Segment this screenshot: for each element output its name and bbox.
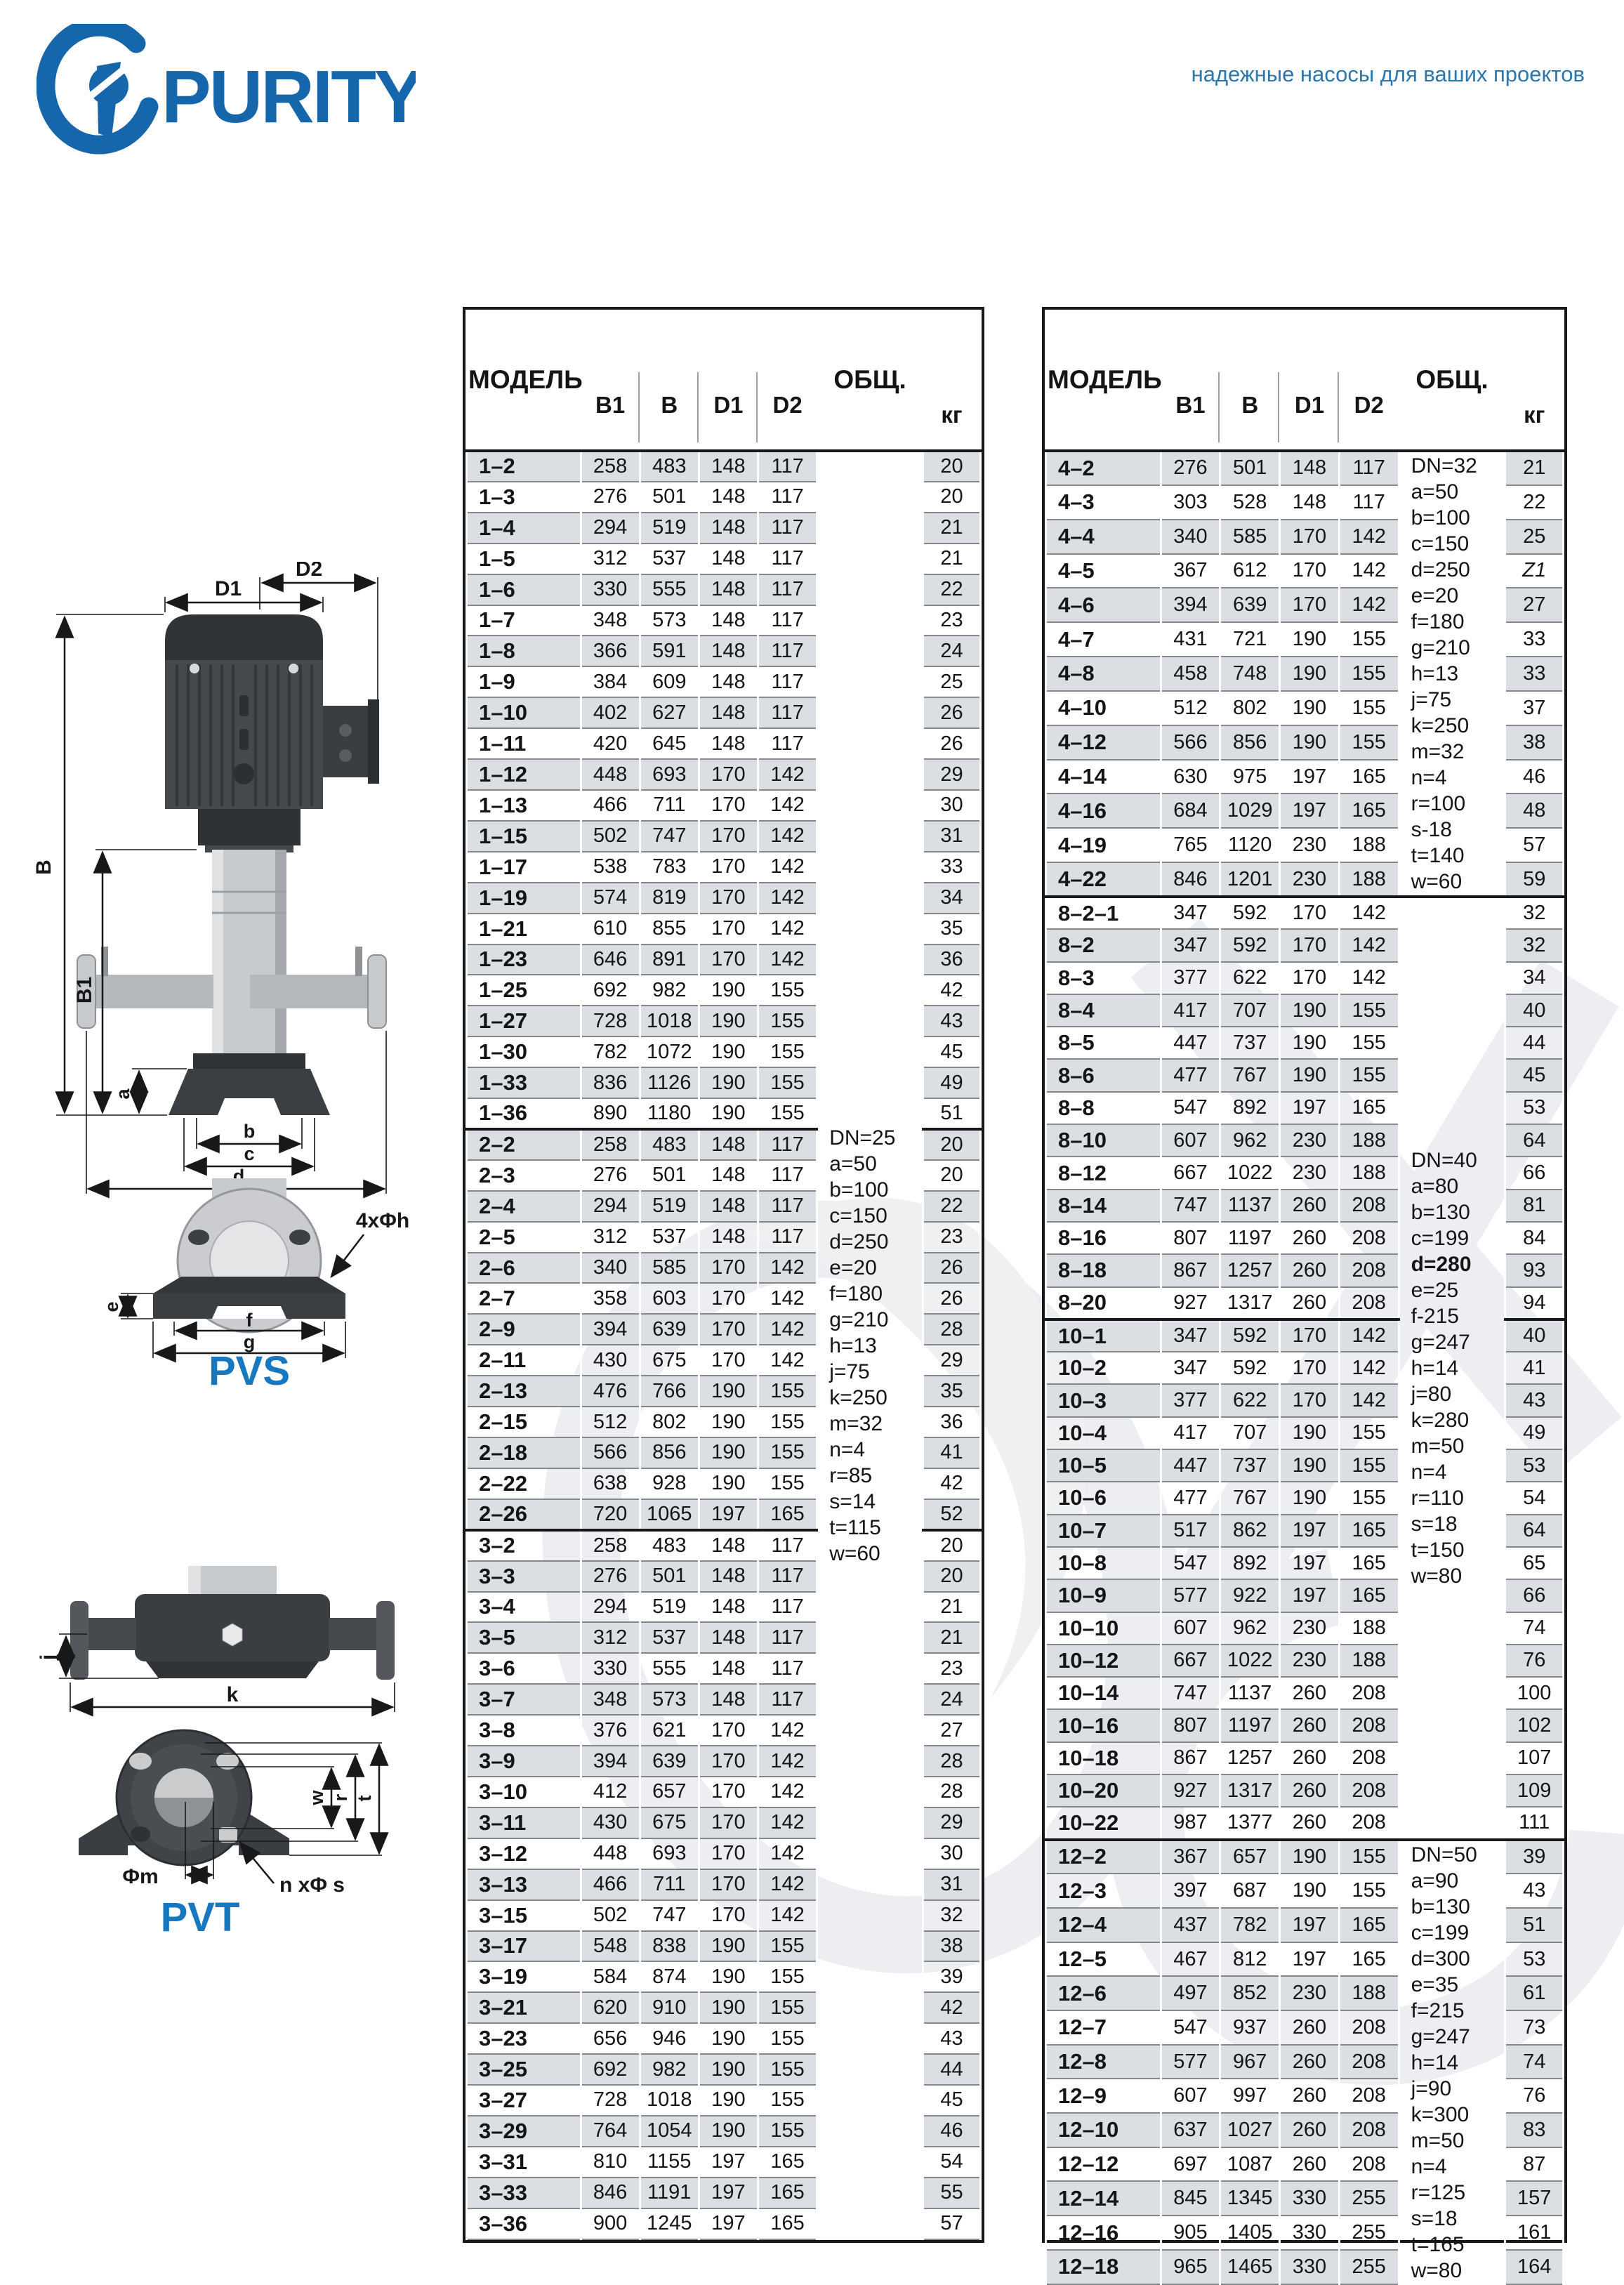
dim-cell: 707 — [1220, 1417, 1280, 1449]
dim-cell: 711 — [640, 1869, 699, 1900]
dim-cell: 782 — [1220, 1908, 1280, 1942]
dim-cell: 376 — [581, 1715, 640, 1746]
model-cell: 10–14 — [1046, 1677, 1161, 1709]
dim-cell: 155 — [1339, 1027, 1399, 1059]
dim-cell: 856 — [640, 1437, 699, 1468]
dim-cell: 807 — [1161, 1709, 1220, 1741]
dim-cell: 675 — [640, 1807, 699, 1838]
dim-cell: 148 — [1280, 485, 1340, 520]
pvt-flange-view: w r t Φm n xΦ s — [79, 1730, 382, 1897]
model-cell: 4–10 — [1046, 691, 1161, 725]
model-cell: 4–16 — [1046, 794, 1161, 828]
dim-cell: 846 — [1161, 862, 1220, 897]
dim-cell: 148 — [1280, 451, 1340, 485]
dim-cell: 867 — [1161, 1742, 1220, 1774]
dim-cell: 692 — [581, 975, 640, 1006]
dim-cell: 117 — [758, 1561, 817, 1592]
model-cell: 8–18 — [1046, 1254, 1161, 1286]
model-cell: 3–6 — [467, 1653, 581, 1684]
dim-cell: 255 — [1339, 2181, 1399, 2215]
discharge-pipe — [250, 975, 374, 1008]
weight-cell: 43 — [923, 2023, 980, 2054]
model-cell: 2–26 — [467, 1499, 581, 1530]
model-cell: 12–14 — [1046, 2181, 1161, 2215]
weight-cell: 46 — [923, 2116, 980, 2147]
dim-cell: 208 — [1339, 2010, 1399, 2045]
dim-cell: 645 — [640, 728, 699, 759]
dim-cell: 927 — [1161, 1774, 1220, 1807]
col-header-d2: D2 — [1339, 310, 1399, 451]
dim-cell: 155 — [758, 2023, 817, 2054]
weight-cell: 53 — [1505, 1092, 1564, 1124]
dim-cell: 747 — [640, 821, 699, 852]
obsh-notes-cell: DN=32a=50b=100c=150d=250e=20f=180g=210h=… — [1399, 451, 1505, 897]
dim-cell: 573 — [640, 605, 699, 636]
dim-cell: 190 — [1280, 657, 1340, 691]
dim-cell: 891 — [640, 944, 699, 975]
weight-cell: 52 — [923, 1499, 980, 1530]
model-cell: 2–7 — [467, 1283, 581, 1314]
model-cell: 3–27 — [467, 2085, 581, 2116]
dim-cell: 547 — [1161, 2010, 1220, 2045]
model-cell: 12–12 — [1046, 2147, 1161, 2182]
weight-cell: 20 — [923, 1561, 980, 1592]
weight-cell: 84 — [1505, 1222, 1564, 1254]
dim-cell: 148 — [699, 482, 758, 513]
dim-cell: 197 — [1280, 1908, 1340, 1942]
dim-cell: 165 — [1339, 1092, 1399, 1124]
dim-cell: 142 — [758, 944, 817, 975]
dim-cell: 547 — [1161, 1547, 1220, 1579]
dim-cell: 1377 — [1220, 1807, 1280, 1839]
dim-label-a: a — [112, 1088, 133, 1100]
brand-tagline: надежные насосы для ваших проектов — [1191, 62, 1585, 87]
weight-cell: 26 — [923, 1253, 980, 1284]
weight-cell: 20 — [923, 1129, 980, 1160]
dim-cell: 620 — [581, 1992, 640, 2023]
dim-cell: 190 — [699, 1006, 758, 1036]
model-cell: 8–8 — [1046, 1092, 1161, 1124]
dim-cell: 377 — [1161, 962, 1220, 994]
dim-cell: 347 — [1161, 1319, 1220, 1352]
dim-cell: 810 — [581, 2147, 640, 2178]
dim-cell: 962 — [1220, 1612, 1280, 1645]
pump-motor — [165, 614, 379, 809]
dim-cell: 148 — [699, 605, 758, 636]
dim-cell: 845 — [1161, 2181, 1220, 2215]
model-cell: 8–16 — [1046, 1222, 1161, 1254]
dim-cell: 347 — [1161, 1352, 1220, 1384]
dim-cell: 142 — [758, 1345, 817, 1376]
model-cell: 10–5 — [1046, 1449, 1161, 1482]
dim-cell: 117 — [758, 1653, 817, 1684]
dim-cell: 188 — [1339, 828, 1399, 862]
weight-cell: 54 — [1505, 1482, 1564, 1514]
dim-cell: 155 — [758, 1098, 817, 1129]
dim-cell: 117 — [758, 574, 817, 605]
dim-cell: 142 — [758, 759, 817, 790]
dim-cell: 394 — [581, 1746, 640, 1777]
model-cell: 10–1 — [1046, 1319, 1161, 1352]
weight-cell: 93 — [1505, 1254, 1564, 1286]
dim-cell: 420 — [581, 728, 640, 759]
dim-cell: 190 — [699, 1036, 758, 1067]
header-row: МОДЕЛЬ B1 B D1 D2 ОБЩ. кг — [1046, 310, 1564, 451]
dim-cell: 148 — [699, 1191, 758, 1222]
dim-cell: 687 — [1220, 1874, 1280, 1908]
weight-cell: 28 — [923, 1777, 980, 1807]
dim-cell: 148 — [699, 697, 758, 728]
dim-cell: 142 — [758, 1807, 817, 1838]
col-header-obsh: ОБЩ. — [817, 310, 923, 451]
dim-cell: 197 — [1280, 1515, 1340, 1547]
weight-cell: 24 — [923, 636, 980, 666]
col-header-b1: B1 — [581, 310, 640, 451]
dim-cell: 155 — [1339, 1482, 1399, 1514]
brand-text: PURITY — [161, 55, 416, 138]
dim-cell: 230 — [1280, 862, 1340, 897]
model-cell: 12–18 — [1046, 2250, 1161, 2284]
weight-cell: 33 — [1505, 657, 1564, 691]
dim-cell: 566 — [581, 1437, 640, 1468]
dim-cell: 190 — [1280, 1840, 1340, 1874]
dim-cell: 208 — [1339, 1807, 1399, 1839]
dim-cell: 330 — [581, 1653, 640, 1684]
dim-cell: 1126 — [640, 1067, 699, 1098]
weight-cell: 25 — [1505, 520, 1564, 554]
dim-cell: 142 — [758, 821, 817, 852]
dim-cell: 230 — [1280, 1645, 1340, 1677]
weight-cell: 57 — [923, 2208, 980, 2239]
model-cell: 4–3 — [1046, 485, 1161, 520]
weight-cell: 44 — [923, 2054, 980, 2085]
dim-cell: 190 — [699, 1931, 758, 1962]
weight-cell: 21 — [923, 513, 980, 544]
model-cell: 3–23 — [467, 2023, 581, 2054]
model-cell: 10–2 — [1046, 1352, 1161, 1384]
pvt-housing — [70, 1566, 395, 1680]
dim-cell: 170 — [699, 790, 758, 821]
dim-cell: 208 — [1339, 1709, 1399, 1741]
terminal-box — [323, 706, 371, 777]
dim-cell: 170 — [699, 852, 758, 883]
dim-cell: 501 — [640, 1160, 699, 1191]
dim-cell: 477 — [1161, 1059, 1220, 1091]
dim-cell: 630 — [1161, 760, 1220, 794]
dim-cell: 165 — [758, 2147, 817, 2178]
dim-cell: 982 — [640, 2054, 699, 2085]
model-cell: 10–20 — [1046, 1774, 1161, 1807]
dim-cell: 501 — [1220, 451, 1280, 485]
weight-cell: 39 — [923, 1961, 980, 1992]
dim-cell: 312 — [581, 1622, 640, 1653]
model-cell: 12–2 — [1046, 1840, 1161, 1874]
weight-cell: 54 — [923, 2147, 980, 2178]
dim-cell: 142 — [758, 1777, 817, 1807]
model-cell: 3–31 — [467, 2147, 581, 2178]
dim-cell: 987 — [1161, 1807, 1220, 1839]
dim-cell: 170 — [699, 1869, 758, 1900]
dim-label-e: e — [101, 1301, 122, 1312]
dim-cell: 1054 — [640, 2116, 699, 2147]
model-cell: 1–27 — [467, 1006, 581, 1036]
dim-cell: 170 — [1280, 520, 1340, 554]
dim-cell: 197 — [699, 1499, 758, 1530]
dim-cell: 155 — [758, 1931, 817, 1962]
weight-cell: 107 — [1505, 1742, 1564, 1774]
dim-cell: 190 — [699, 975, 758, 1006]
dim-cell: 208 — [1339, 2147, 1399, 2182]
dim-cell: 483 — [640, 451, 699, 482]
dim-cell: 170 — [699, 1900, 758, 1931]
dim-cell: 501 — [640, 1561, 699, 1592]
dim-cell: 693 — [640, 1838, 699, 1869]
dim-cell: 622 — [1220, 962, 1280, 994]
dim-cell: 117 — [1339, 485, 1399, 520]
dim-cell: 667 — [1161, 1645, 1220, 1677]
model-cell: 3–2 — [467, 1530, 581, 1561]
weight-cell: 109 — [1505, 1774, 1564, 1807]
weight-cell: 27 — [923, 1715, 980, 1746]
model-cell: 12–5 — [1046, 1942, 1161, 1977]
dim-cell: 707 — [1220, 994, 1280, 1027]
dim-label-j: j — [37, 1654, 60, 1661]
model-cell: 10–7 — [1046, 1515, 1161, 1547]
model-cell: 2–5 — [467, 1222, 581, 1253]
dim-cell: 548 — [581, 1931, 640, 1962]
dim-cell: 155 — [758, 1067, 817, 1098]
dim-cell: 639 — [640, 1314, 699, 1345]
dim-cell: 303 — [1161, 485, 1220, 520]
dim-cell: 170 — [699, 1283, 758, 1314]
obsh-notes-cell: DN=25a=50b=100c=150d=250e=20f=180g=210h=… — [817, 451, 923, 2239]
dim-cell: 476 — [581, 1376, 640, 1407]
dim-cell: 197 — [1280, 1547, 1340, 1579]
dim-label-f: f — [246, 1310, 253, 1331]
model-cell: 4–6 — [1046, 588, 1161, 622]
weight-cell: 38 — [923, 1931, 980, 1962]
weight-cell: 161 — [1505, 2215, 1564, 2250]
dim-cell: 1137 — [1220, 1190, 1280, 1222]
dim-cell: 783 — [640, 852, 699, 883]
model-cell: 12–16 — [1046, 2215, 1161, 2250]
dim-cell: 255 — [1339, 2250, 1399, 2284]
weight-cell: 21 — [1505, 451, 1564, 485]
dim-cell: 190 — [699, 1961, 758, 1992]
dim-cell: 1197 — [1220, 1222, 1280, 1254]
dim-cell: 208 — [1339, 1190, 1399, 1222]
dim-cell: 188 — [1339, 1124, 1399, 1157]
dim-cell: 330 — [1280, 2250, 1340, 2284]
pvs-label: PVS — [209, 1348, 290, 1394]
model-cell: 8–20 — [1046, 1287, 1161, 1319]
suction-pipe — [90, 975, 213, 1008]
model-cell: 3–21 — [467, 1992, 581, 2023]
dim-cell: 197 — [1280, 760, 1340, 794]
dim-cell: 312 — [581, 1222, 640, 1253]
dim-cell: 555 — [640, 574, 699, 605]
dim-cell: 165 — [1339, 1579, 1399, 1612]
dim-cell: 142 — [758, 1715, 817, 1746]
dim-label-b-height: B — [32, 860, 55, 875]
weight-cell: 35 — [923, 1376, 980, 1407]
model-cell: 2–9 — [467, 1314, 581, 1345]
model-cell: 8–10 — [1046, 1124, 1161, 1157]
dim-cell: 170 — [1280, 1319, 1340, 1352]
dim-cell: 577 — [1161, 1579, 1220, 1612]
weight-cell: 23 — [923, 605, 980, 636]
dim-cell: 155 — [1339, 691, 1399, 725]
dim-cell: 447 — [1161, 1449, 1220, 1482]
dim-cell: 155 — [1339, 657, 1399, 691]
weight-cell: 20 — [923, 1530, 980, 1561]
model-cell: 1–36 — [467, 1098, 581, 1129]
dim-cell: 711 — [640, 790, 699, 821]
dim-cell: 117 — [758, 1160, 817, 1191]
dim-cell: 117 — [758, 1129, 817, 1160]
weight-cell: 59 — [1505, 862, 1564, 897]
weight-cell: 45 — [923, 1036, 980, 1067]
col-header-obsh: ОБЩ. — [1399, 310, 1505, 451]
weight-cell: 26 — [923, 1283, 980, 1314]
dim-cell: 190 — [1280, 1482, 1340, 1514]
model-cell: 1–9 — [467, 666, 581, 697]
model-cell: 8–4 — [1046, 994, 1161, 1027]
dim-cell: 928 — [640, 1468, 699, 1499]
dim-cell: 412 — [581, 1777, 640, 1807]
dim-cell: 748 — [1220, 657, 1280, 691]
dim-cell: 621 — [640, 1715, 699, 1746]
model-cell: 2–15 — [467, 1407, 581, 1437]
dim-cell: 657 — [1220, 1840, 1280, 1874]
dim-cell: 117 — [758, 1592, 817, 1623]
weight-cell: 64 — [1505, 1124, 1564, 1157]
dim-cell: 170 — [1280, 1352, 1340, 1384]
dim-label-b1: B1 — [73, 977, 96, 1003]
dim-cell: 577 — [1161, 2045, 1220, 2079]
weight-cell: 49 — [923, 1067, 980, 1098]
model-cell: 1–17 — [467, 852, 581, 883]
model-cell: 1–4 — [467, 513, 581, 544]
weight-cell: 32 — [1505, 929, 1564, 961]
model-cell: 3–11 — [467, 1807, 581, 1838]
dim-cell: 258 — [581, 1129, 640, 1160]
dim-cell: 537 — [640, 1622, 699, 1653]
model-cell: 10–3 — [1046, 1384, 1161, 1416]
dim-cell: 294 — [581, 1191, 640, 1222]
dim-cell: 607 — [1161, 1612, 1220, 1645]
weight-cell: 55 — [923, 2178, 980, 2208]
weight-cell: 66 — [1505, 1579, 1564, 1612]
col-header-model: МОДЕЛЬ — [467, 310, 581, 451]
weight-cell: 38 — [1505, 725, 1564, 760]
dim-cell: 812 — [1220, 1942, 1280, 1977]
dim-cell: 892 — [1220, 1547, 1280, 1579]
dim-cell: 148 — [699, 544, 758, 574]
dim-cell: 430 — [581, 1345, 640, 1376]
dim-cell: 117 — [758, 513, 817, 544]
dim-cell: 417 — [1161, 1417, 1220, 1449]
dim-cell: 197 — [699, 2147, 758, 2178]
model-cell: 4–14 — [1046, 760, 1161, 794]
dim-cell: 117 — [758, 636, 817, 666]
dim-label-bolt-n: n xΦ s — [279, 1874, 345, 1897]
dim-cell: 1029 — [1220, 794, 1280, 828]
dim-cell: 155 — [758, 1407, 817, 1437]
dim-cell: 312 — [581, 544, 640, 574]
dim-cell: 684 — [1161, 794, 1220, 828]
dim-cell: 155 — [1339, 622, 1399, 657]
dim-cell: 394 — [1161, 588, 1220, 622]
dim-cell: 437 — [1161, 1908, 1220, 1942]
dim-cell: 1465 — [1220, 2250, 1280, 2284]
dim-cell: 197 — [1280, 1579, 1340, 1612]
weight-cell: 22 — [923, 1191, 980, 1222]
dim-cell: 117 — [758, 1191, 817, 1222]
dim-cell: 394 — [581, 1314, 640, 1345]
weight-cell: 28 — [923, 1314, 980, 1345]
table-row: 4–2276501148117DN=32a=50b=100c=150d=250e… — [1046, 451, 1564, 485]
dim-cell: 466 — [581, 790, 640, 821]
col-header-model: МОДЕЛЬ — [1046, 310, 1161, 451]
model-cell: 3–9 — [467, 1746, 581, 1777]
dim-cell: 448 — [581, 759, 640, 790]
dim-cell: 782 — [581, 1036, 640, 1067]
model-cell: 12–8 — [1046, 2045, 1161, 2079]
dim-cell: 467 — [1161, 1942, 1220, 1977]
dim-cell: 517 — [1161, 1515, 1220, 1547]
weight-cell: 26 — [923, 697, 980, 728]
weight-cell: 20 — [923, 451, 980, 482]
dim-cell: 165 — [758, 2178, 817, 2208]
dim-cell: 639 — [1220, 588, 1280, 622]
dim-cell: 836 — [581, 1067, 640, 1098]
weight-cell: 49 — [1505, 1417, 1564, 1449]
dim-cell: 519 — [640, 1191, 699, 1222]
dim-cell: 142 — [758, 1253, 817, 1284]
model-cell: 4–2 — [1046, 451, 1161, 485]
model-cell: 3–13 — [467, 1869, 581, 1900]
model-cell: 4–5 — [1046, 554, 1161, 588]
dim-cell: 170 — [1280, 1384, 1340, 1416]
dim-cell: 155 — [758, 975, 817, 1006]
dim-cell: 260 — [1280, 2010, 1340, 2045]
dim-cell: 148 — [699, 1160, 758, 1191]
dim-cell: 497 — [1161, 1976, 1220, 2010]
dim-cell: 117 — [758, 451, 817, 482]
weight-cell: 25 — [923, 666, 980, 697]
dim-cell: 148 — [699, 574, 758, 605]
dim-cell: 737 — [1220, 1027, 1280, 1059]
model-cell: 4–8 — [1046, 657, 1161, 691]
dim-cell: 366 — [581, 636, 640, 666]
weight-cell: 41 — [1505, 1352, 1564, 1384]
table-row: 12–2367657190155DN=50a=90b=130c=199d=300… — [1046, 1840, 1564, 1874]
dim-cell: 142 — [758, 1283, 817, 1314]
dim-cell: 874 — [640, 1961, 699, 1992]
dim-cell: 170 — [699, 821, 758, 852]
model-cell: 4–4 — [1046, 520, 1161, 554]
dim-cell: 148 — [699, 636, 758, 666]
dim-cell: 190 — [1280, 1874, 1340, 1908]
dim-cell: 142 — [1339, 962, 1399, 994]
dim-cell: 1018 — [640, 2085, 699, 2116]
dim-cell: 165 — [1339, 1942, 1399, 1977]
dim-cell: 230 — [1280, 1157, 1340, 1189]
weight-cell: 32 — [923, 1900, 980, 1931]
dim-cell: 728 — [581, 2085, 640, 2116]
dim-cell: 477 — [1161, 1482, 1220, 1514]
